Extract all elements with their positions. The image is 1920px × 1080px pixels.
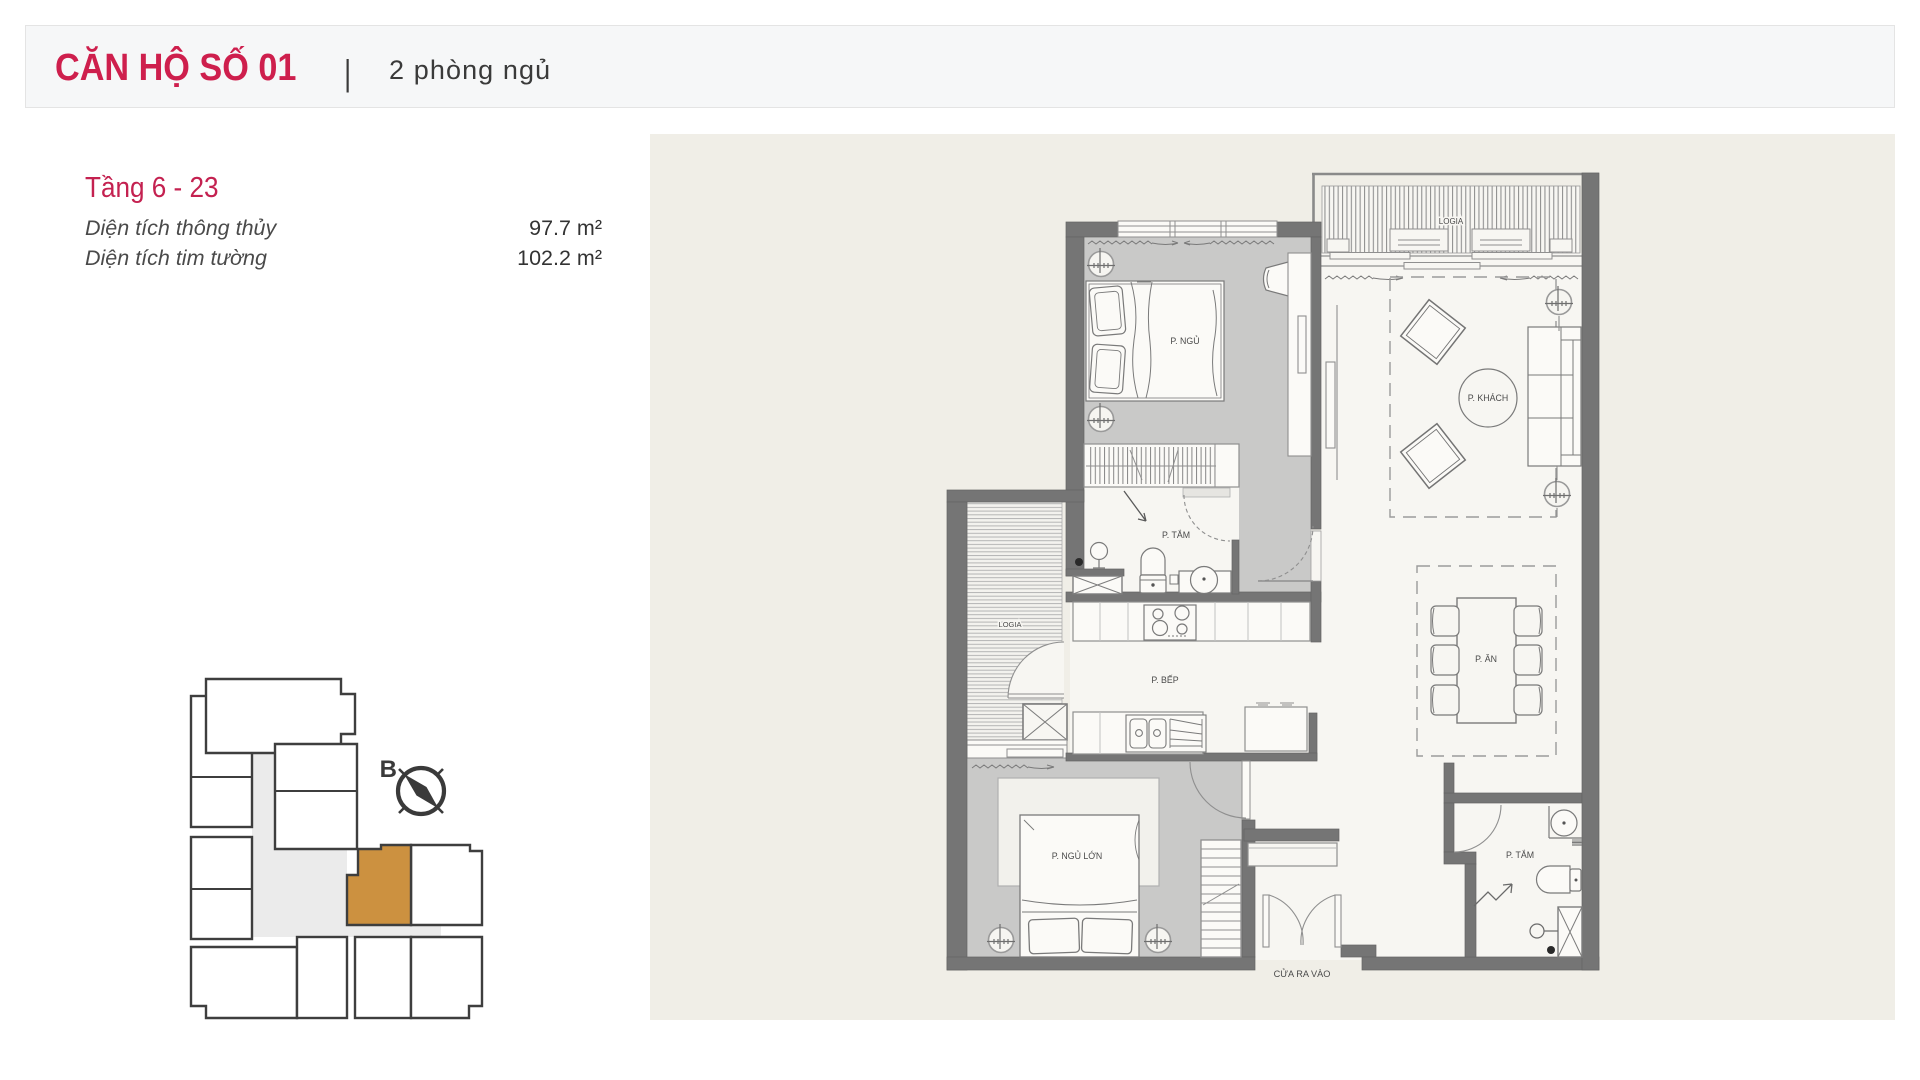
svg-text:P. KHÁCH: P. KHÁCH bbox=[1468, 393, 1508, 403]
svg-text:P. NGỦ LỚN: P. NGỦ LỚN bbox=[1052, 850, 1102, 861]
svg-text:LOGIA: LOGIA bbox=[1439, 217, 1464, 226]
svg-text:P. TẮM: P. TẮM bbox=[1506, 850, 1534, 860]
svg-text:P. ĂN: P. ĂN bbox=[1475, 654, 1497, 664]
svg-text:CỬA RA VÀO: CỬA RA VÀO bbox=[1274, 968, 1331, 979]
svg-text:P. BẾP: P. BẾP bbox=[1151, 675, 1178, 685]
svg-text:P. TẮM: P. TẮM bbox=[1162, 530, 1190, 540]
svg-text:B: B bbox=[380, 756, 397, 783]
svg-text:P. NGỦ: P. NGỦ bbox=[1170, 335, 1199, 346]
svg-text:LOGIA: LOGIA bbox=[999, 620, 1022, 629]
